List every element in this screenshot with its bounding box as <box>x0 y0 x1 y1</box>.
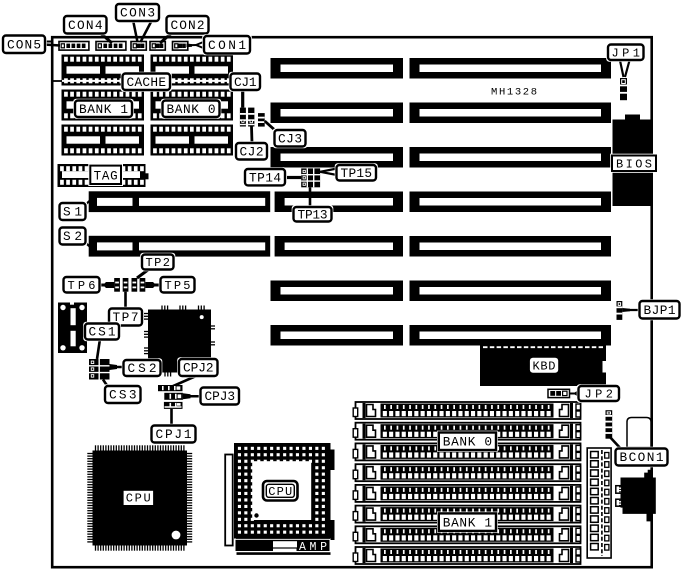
svg-text:CON3: CON3 <box>120 6 155 21</box>
svg-text:AMP: AMP <box>299 541 327 554</box>
svg-text:TP15: TP15 <box>341 166 373 181</box>
svg-text:BCON1: BCON1 <box>620 450 664 465</box>
svg-text:CPJ1: CPJ1 <box>156 427 192 442</box>
svg-text:CACHE: CACHE <box>127 75 167 90</box>
svg-text:CON5: CON5 <box>7 37 41 52</box>
svg-text:TP13: TP13 <box>298 207 328 222</box>
svg-text:TP14: TP14 <box>249 170 281 185</box>
svg-text:TP2: TP2 <box>146 256 171 270</box>
svg-text:CON2: CON2 <box>171 18 205 33</box>
svg-text:BANK 1: BANK 1 <box>443 515 493 530</box>
svg-text:BANK 0: BANK 0 <box>443 434 492 449</box>
svg-text:CS3: CS3 <box>109 388 137 403</box>
svg-text:BJP1: BJP1 <box>644 303 676 318</box>
svg-text:TP5: TP5 <box>165 279 191 293</box>
svg-text:CS1: CS1 <box>89 325 116 340</box>
svg-text:CJ2: CJ2 <box>240 144 264 159</box>
svg-text:CPJ3: CPJ3 <box>205 389 236 404</box>
svg-text:CS2: CS2 <box>128 361 157 376</box>
svg-text:KBD: KBD <box>533 360 556 374</box>
svg-text:TP6: TP6 <box>68 279 96 293</box>
svg-text:BANK 1: BANK 1 <box>79 102 128 117</box>
svg-text:CJ1: CJ1 <box>234 75 257 90</box>
svg-text:CPU: CPU <box>268 485 292 499</box>
svg-text:CPJ2: CPJ2 <box>183 361 214 376</box>
svg-text:CON4: CON4 <box>68 18 103 33</box>
svg-text:CPU: CPU <box>126 492 151 506</box>
svg-text:CJ3: CJ3 <box>278 131 302 146</box>
svg-text:BANK 0: BANK 0 <box>167 102 216 117</box>
svg-text:JP1: JP1 <box>612 46 641 60</box>
svg-text:TAG: TAG <box>94 170 118 184</box>
svg-text:JP2: JP2 <box>585 388 614 402</box>
